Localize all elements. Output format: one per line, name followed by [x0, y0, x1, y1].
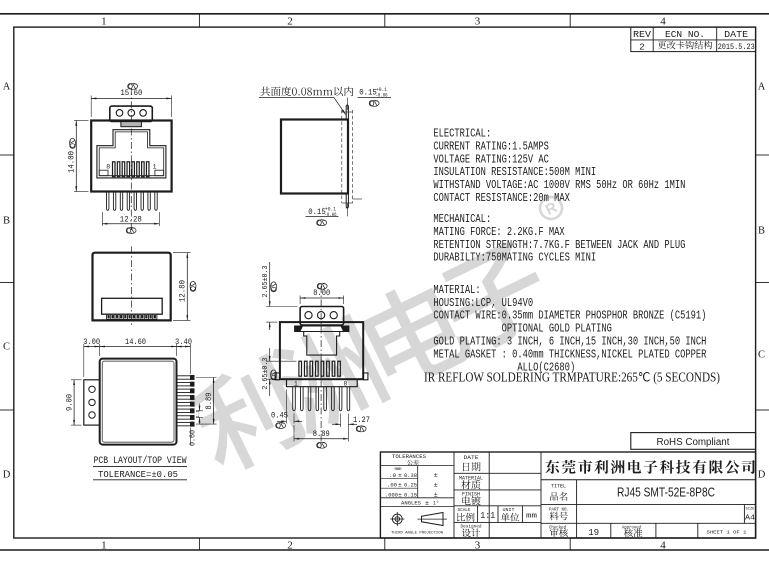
svg-text:SHEET 1 OF 1: SHEET 1 OF 1: [707, 530, 747, 536]
svg-text:RETENTION STRENGTH:7.7KG.F BET: RETENTION STRENGTH:7.7KG.F BETWEEN JACK …: [433, 239, 685, 252]
svg-text:REV: REV: [633, 30, 652, 40]
svg-text:2015.5.23: 2015.5.23: [718, 42, 755, 52]
svg-text:A: A: [758, 82, 766, 93]
svg-text:D: D: [758, 470, 766, 481]
svg-text:CURRENT RATING:1.5AMPS: CURRENT RATING:1.5AMPS: [433, 140, 549, 153]
svg-text:12.80: 12.80: [179, 280, 188, 302]
svg-text:4: 4: [660, 540, 666, 552]
svg-text:A4: A4: [745, 515, 755, 523]
svg-text:±: ±: [398, 483, 401, 489]
svg-text:IR REFLOW SOLDERING TRMPATURE:: IR REFLOW SOLDERING TRMPATURE:265℃ (5 SE…: [424, 370, 720, 385]
svg-text:DURABILTY:750MATING CYCLES MIN: DURABILTY:750MATING CYCLES MINI: [433, 252, 596, 265]
svg-text:0.45: 0.45: [271, 412, 288, 420]
svg-text:1: 1: [294, 381, 298, 388]
svg-text:8.00: 8.00: [313, 289, 330, 298]
svg-text:Approved: Approved: [622, 525, 641, 530]
svg-text:A: A: [3, 82, 11, 93]
svg-text:TOLERANCES: TOLERANCES: [392, 453, 427, 460]
svg-text:1.27: 1.27: [353, 417, 370, 425]
svg-text:INSULATION RESISTANCE:500M MIN: INSULATION RESISTANCE:500M MINI: [433, 166, 596, 179]
svg-text:Designed: Designed: [461, 524, 482, 530]
svg-text:ELECTRICAL:: ELECTRICAL:: [433, 128, 491, 141]
svg-text:GOLD PLATING: 3 INCH, 6 INCH,1: GOLD PLATING: 3 INCH, 6 INCH,15 INCH,30 …: [433, 336, 706, 349]
svg-text:±: ±: [398, 473, 401, 479]
svg-text:0.25: 0.25: [404, 482, 417, 489]
svg-text:DATE: DATE: [724, 30, 748, 40]
svg-text:1: 1: [101, 16, 107, 28]
svg-text:THIRD ANGLE PROJECTION: THIRD ANGLE PROJECTION: [391, 532, 444, 536]
svg-text:.000: .000: [385, 491, 398, 498]
svg-text:0.60: 0.60: [190, 430, 198, 446]
svg-text:±: ±: [434, 492, 438, 499]
svg-text:3: 3: [475, 16, 481, 28]
svg-text:ECN NO.: ECN NO.: [665, 30, 705, 40]
svg-text:9.00: 9.00: [65, 394, 74, 411]
svg-text:12.28: 12.28: [120, 216, 142, 225]
svg-text:2: 2: [639, 42, 644, 52]
svg-text:2.65±0.3: 2.65±0.3: [262, 358, 270, 390]
svg-text:8.89: 8.89: [205, 392, 214, 409]
svg-text:METAL GASKET : 0.40mm THICKNES: METAL GASKET : 0.40mm THICKNESS,NICKEL P…: [433, 348, 706, 361]
svg-text:C: C: [3, 342, 10, 353]
svg-text:.00: .00: [387, 482, 397, 489]
svg-text:MECHANICAL:: MECHANICAL:: [433, 213, 491, 226]
svg-text:B: B: [3, 216, 10, 227]
svg-text:0.15: 0.15: [308, 208, 326, 217]
svg-text:MATERIAL:: MATERIAL:: [433, 284, 480, 297]
svg-text:3.00: 3.00: [83, 339, 100, 347]
svg-text:ANGLES: ANGLES: [401, 500, 421, 507]
svg-text:15.60: 15.60: [120, 89, 142, 98]
svg-text:2.65±0.3: 2.65±0.3: [262, 266, 270, 298]
svg-text:8: 8: [106, 164, 110, 171]
svg-text:FINISH: FINISH: [462, 491, 480, 497]
svg-text:±: ±: [434, 482, 438, 489]
svg-text:0.38: 0.38: [404, 472, 417, 479]
svg-text:CONTACT RESISTANCE:20m MAX: CONTACT RESISTANCE:20m MAX: [433, 192, 570, 205]
svg-text:14.60: 14.60: [125, 339, 146, 347]
svg-text:8: 8: [343, 381, 347, 388]
svg-text:-0.06: -0.06: [325, 212, 337, 218]
svg-text:14.00: 14.00: [68, 151, 77, 173]
svg-text:SIZE: SIZE: [746, 508, 756, 512]
svg-text:DATE: DATE: [464, 455, 479, 461]
svg-text:MATING FORCE: 2.2KG.F MAX: MATING FORCE: 2.2KG.F MAX: [433, 226, 564, 239]
svg-text:VOLTAGE RATING:125V AC: VOLTAGE RATING:125V AC: [433, 153, 549, 166]
svg-text:CONTACT WIRE:0.35mm DIAMETER P: CONTACT WIRE:0.35mm DIAMETER PHOSPHOR BR…: [433, 310, 706, 323]
svg-text:1°: 1°: [433, 500, 439, 507]
svg-text:B: B: [758, 226, 765, 237]
svg-text:PART NO.: PART NO.: [549, 506, 569, 512]
svg-text:TITEL: TITEL: [551, 484, 566, 490]
svg-text:.0: .0: [389, 472, 397, 479]
svg-text:SCALE: SCALE: [458, 507, 471, 513]
svg-text:±: ±: [398, 492, 401, 498]
svg-text:RoHS Compliant: RoHS Compliant: [657, 437, 730, 448]
svg-text:19: 19: [588, 527, 599, 538]
svg-text:-0.06: -0.06: [376, 92, 388, 98]
svg-text:2: 2: [287, 540, 293, 552]
svg-text:0.15: 0.15: [404, 491, 417, 498]
svg-text:C: C: [758, 350, 765, 361]
svg-text:4: 4: [660, 16, 666, 28]
svg-text:1.1: 1.1: [195, 410, 201, 418]
svg-text:3: 3: [475, 540, 481, 552]
svg-text:mm: mm: [526, 513, 538, 521]
svg-text:±: ±: [434, 472, 438, 479]
svg-text:0.15: 0.15: [359, 88, 377, 97]
svg-text:D: D: [3, 470, 11, 481]
svg-text:3.40: 3.40: [175, 339, 192, 347]
svg-text:TOLERANCE=±0.05: TOLERANCE=±0.05: [98, 469, 178, 480]
svg-text:RJ45 SMT-52E-8P8C: RJ45 SMT-52E-8P8C: [617, 486, 715, 500]
svg-text:1: 1: [101, 540, 107, 552]
svg-text:1:1: 1:1: [480, 510, 495, 521]
svg-text:OPTIONAL GOLD PLATING: OPTIONAL GOLD PLATING: [502, 323, 612, 336]
svg-text:WITHSTAND VOLTAGE:AC 1000V RMS: WITHSTAND VOLTAGE:AC 1000V RMS 50Hz OR 6…: [433, 179, 685, 192]
svg-text:HOUSING:LCP, UL94V0: HOUSING:LCP, UL94V0: [433, 297, 533, 310]
svg-text:2: 2: [287, 16, 293, 28]
svg-text:UNIT: UNIT: [503, 507, 515, 513]
svg-text:±: ±: [425, 500, 429, 507]
svg-text:8.89: 8.89: [313, 430, 330, 439]
svg-text:1: 1: [153, 164, 157, 171]
svg-text:PCB LAYOUT/TOP VIEW: PCB LAYOUT/TOP VIEW: [94, 455, 187, 467]
